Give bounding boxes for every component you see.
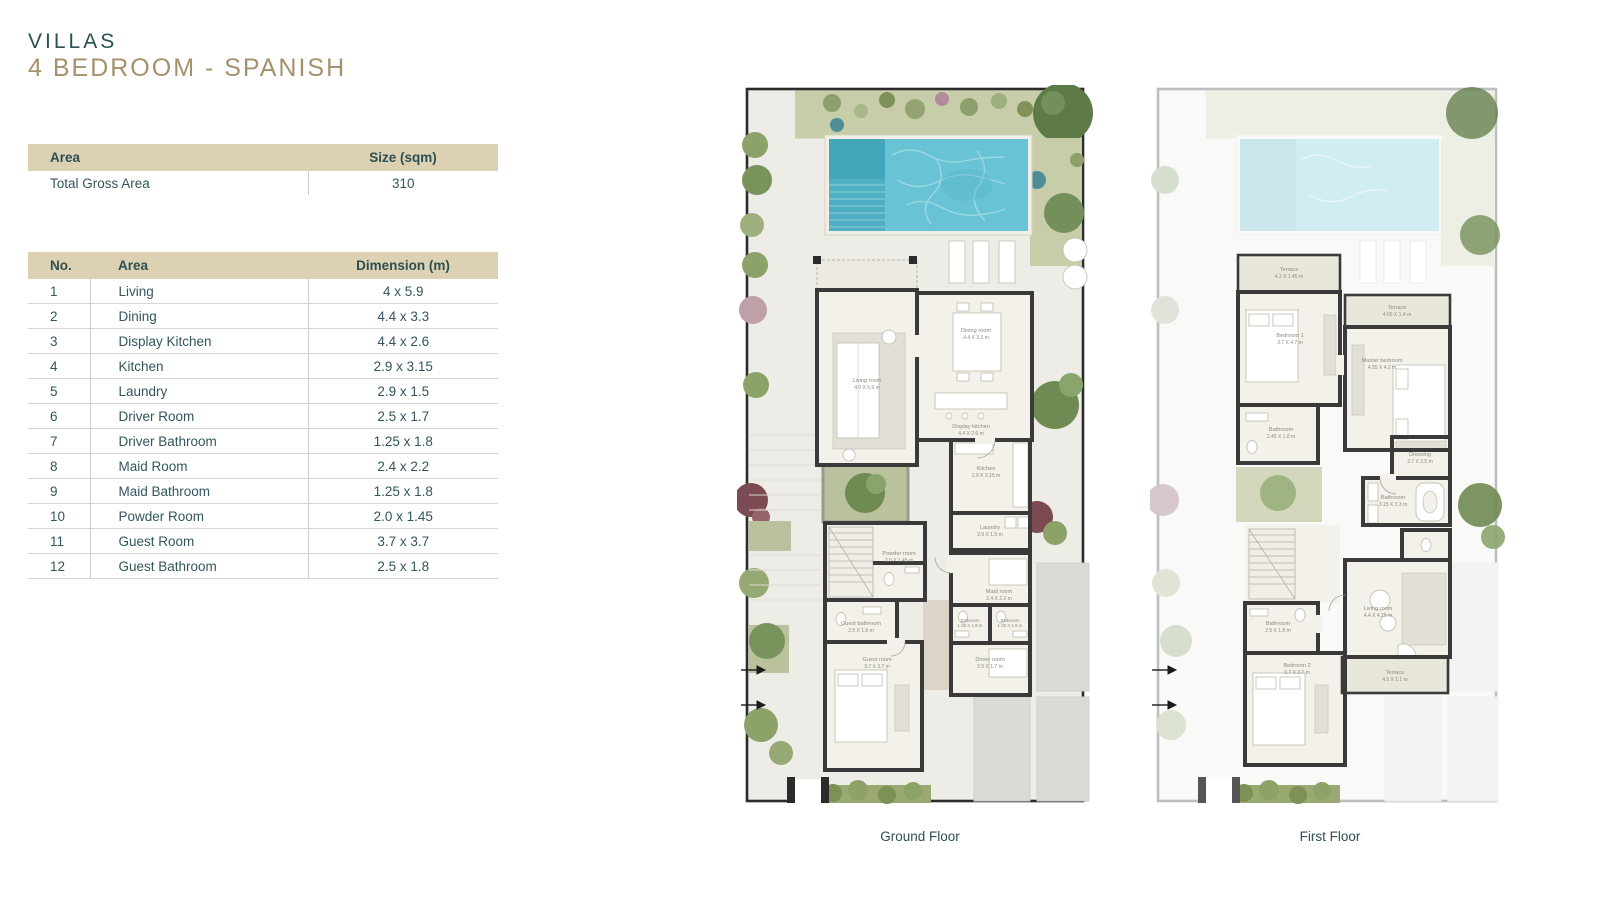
- label-driver-room: Driver room: [975, 657, 1005, 663]
- cell-area: Maid Room: [90, 454, 308, 479]
- label-display-kitchen: Display kitchen: [952, 424, 990, 430]
- table-row: 9Maid Bathroom1.25 x 1.8: [28, 479, 498, 504]
- total-area-table: Area Size (sqm) Total Gross Area 310: [28, 144, 498, 195]
- cell-dim: 2.5 x 1.7: [308, 404, 498, 429]
- svg-text:1.25 X 1.8 m: 1.25 X 1.8 m: [998, 623, 1023, 628]
- stairs: [1249, 529, 1295, 599]
- cell-dim: 2.9 x 1.5: [308, 379, 498, 404]
- table-row: 3Display Kitchen4.4 x 2.6: [28, 329, 498, 354]
- table-header-row: No. Area Dimension (m): [28, 252, 498, 279]
- label-living-room: Living room: [1364, 606, 1393, 612]
- label-kitchen: Kitchen: [977, 466, 996, 472]
- svg-text:4.65 X 1.4 m: 4.65 X 1.4 m: [1383, 312, 1411, 318]
- svg-text:3.7 X 4.7 m: 3.7 X 4.7 m: [1277, 340, 1303, 346]
- ground-floor-caption: Ground Floor: [737, 829, 1103, 844]
- page-title: VILLAS: [28, 30, 117, 54]
- cell-dim: 1.25 x 1.8: [308, 479, 498, 504]
- cell-no: 4: [28, 354, 90, 379]
- cell-area: Kitchen: [90, 354, 308, 379]
- cell-area-size: 310: [308, 171, 498, 195]
- svg-text:2.45 X 1.8 m: 2.45 X 1.8 m: [1267, 434, 1295, 440]
- svg-text:2.4 X 2.2 m: 2.4 X 2.2 m: [986, 596, 1012, 602]
- svg-text:3.7 X 3.7 m: 3.7 X 3.7 m: [864, 664, 890, 670]
- cell-area: Driver Bathroom: [90, 429, 308, 454]
- ground-floor-plan: Living room 4.0 X 5.9 m Dining room 4.4 …: [737, 85, 1103, 813]
- table-row: 4Kitchen2.9 x 3.15: [28, 354, 498, 379]
- svg-text:2.5 X 1.7 m: 2.5 X 1.7 m: [977, 664, 1003, 670]
- cell-no: 6: [28, 404, 90, 429]
- cell-no: 10: [28, 504, 90, 529]
- cell-no: 9: [28, 479, 90, 504]
- label-dressing: Dressing: [1409, 452, 1431, 458]
- label-bathroom-1: Bathroom: [1269, 427, 1294, 433]
- cell-dim: 1.25 x 1.8: [308, 429, 498, 454]
- cell-no: 7: [28, 429, 90, 454]
- table-row: 2Dining4.4 x 3.3: [28, 304, 498, 329]
- cell-dim: 2.5 x 1.8: [308, 554, 498, 579]
- svg-text:4.4 X 2.6 m: 4.4 X 2.6 m: [958, 431, 984, 437]
- cell-area: Powder Room: [90, 504, 308, 529]
- svg-text:2.5 X 1.8 m: 2.5 X 1.8 m: [848, 628, 874, 634]
- room-dimensions-table: No. Area Dimension (m) 1Living4 x 5.9 2D…: [28, 252, 498, 579]
- col-header-size: Size (sqm): [308, 144, 498, 171]
- garden-top: [795, 85, 1093, 143]
- page-subtitle: 4 BEDROOM - SPANISH: [28, 54, 346, 83]
- table-row: 1Living4 x 5.9: [28, 279, 498, 304]
- label-laundry: Laundry: [980, 525, 1000, 531]
- first-floor-caption: First Floor: [1150, 829, 1510, 844]
- svg-text:4.0 X 5.9 m: 4.0 X 5.9 m: [854, 385, 880, 391]
- cell-dim: 2.4 x 2.2: [308, 454, 498, 479]
- porch: [817, 260, 917, 290]
- cell-no: 2: [28, 304, 90, 329]
- cell-no: 3: [28, 329, 90, 354]
- svg-text:1.25 X 1.8 m: 1.25 X 1.8 m: [958, 623, 983, 628]
- cell-area: Laundry: [90, 379, 308, 404]
- entry-path: [923, 600, 953, 690]
- cell-no: 1: [28, 279, 90, 304]
- cell-area-name: Total Gross Area: [28, 171, 308, 195]
- table-row: 8Maid Room2.4 x 2.2: [28, 454, 498, 479]
- svg-text:4.4 X 4.25 m: 4.4 X 4.25 m: [1364, 613, 1392, 619]
- label-bathroom-3: Bathroom: [1266, 621, 1291, 627]
- swimming-pool: [825, 135, 1032, 235]
- label-master-bedroom: Master bedroom: [1362, 358, 1403, 364]
- cell-area: Driver Room: [90, 404, 308, 429]
- table-row: 5Laundry2.9 x 1.5: [28, 379, 498, 404]
- svg-text:2.9 X 1.5 m: 2.9 X 1.5 m: [977, 532, 1003, 538]
- table-row: 6Driver Room2.5 x 1.7: [28, 404, 498, 429]
- col-header-no: No.: [28, 252, 90, 279]
- stairs: [829, 527, 873, 597]
- cell-dim: 2.9 x 3.15: [308, 354, 498, 379]
- ground-floor-plan-drawing: Living room 4.0 X 5.9 m Dining room 4.4 …: [737, 85, 1103, 813]
- cell-dim: 2.0 x 1.45: [308, 504, 498, 529]
- cell-area: Guest Room: [90, 529, 308, 554]
- table-row: Total Gross Area 310: [28, 171, 498, 195]
- label-dining-room: Dining room: [961, 328, 991, 334]
- first-floor-plan-drawing: Terrace 4.2 X 1.45 m Bedroom 1 3.7 X 4.7…: [1150, 85, 1510, 813]
- cell-area: Display Kitchen: [90, 329, 308, 354]
- col-header-dimension: Dimension (m): [308, 252, 498, 279]
- cell-dim: 3.7 x 3.7: [308, 529, 498, 554]
- svg-text:2.0 X 1.45 m: 2.0 X 1.45 m: [885, 558, 913, 564]
- cell-no: 12: [28, 554, 90, 579]
- brochure-page: VILLAS 4 BEDROOM - SPANISH Area Size (sq…: [0, 0, 1600, 900]
- svg-text:4.4 X 3.3 m: 4.4 X 3.3 m: [963, 335, 989, 341]
- table-header-row: Area Size (sqm): [28, 144, 498, 171]
- label-terrace-2: Terrace: [1388, 305, 1407, 311]
- col-header-area: Area: [90, 252, 308, 279]
- cell-area: Living: [90, 279, 308, 304]
- label-powder-room: Powder room: [882, 551, 916, 557]
- table-row: 11Guest Room3.7 x 3.7: [28, 529, 498, 554]
- svg-text:3.15 X 3.3 m: 3.15 X 3.3 m: [1379, 502, 1407, 508]
- label-bedroom-1: Bedroom 1: [1276, 333, 1303, 339]
- table-row: 7Driver Bathroom1.25 x 1.8: [28, 429, 498, 454]
- svg-text:2.9 X 3.15 m: 2.9 X 3.15 m: [972, 473, 1000, 479]
- label-guest-room: Guest room: [862, 657, 892, 663]
- cell-no: 11: [28, 529, 90, 554]
- label-bathroom-2: Bathroom: [1381, 495, 1406, 501]
- cell-dim: 4.4 x 3.3: [308, 304, 498, 329]
- cell-area: Maid Bathroom: [90, 479, 308, 504]
- svg-text:3.7 X 3.7 m: 3.7 X 3.7 m: [1284, 670, 1310, 676]
- label-bedroom-2: Bedroom 2: [1283, 663, 1310, 669]
- entrance-gate: [787, 777, 829, 803]
- cell-dim: 4 x 5.9: [308, 279, 498, 304]
- entrance-gate: [1198, 777, 1240, 803]
- label-terrace-1: Terrace: [1280, 267, 1299, 273]
- label-maid-room: Maid room: [986, 589, 1013, 595]
- cell-no: 5: [28, 379, 90, 404]
- col-header-area: Area: [28, 144, 308, 171]
- cell-area: Guest Bathroom: [90, 554, 308, 579]
- svg-text:4.5 X 1.1 m: 4.5 X 1.1 m: [1382, 677, 1408, 683]
- svg-text:2.5 X 1.8 m: 2.5 X 1.8 m: [1265, 628, 1291, 634]
- cell-dim: 4.4 x 2.6: [308, 329, 498, 354]
- courtyard: [823, 465, 908, 522]
- label-guest-bathroom: Guest bathroom: [841, 621, 881, 627]
- cell-no: 8: [28, 454, 90, 479]
- svg-text:4.2 X 1.45 m: 4.2 X 1.45 m: [1275, 274, 1303, 280]
- svg-text:2.7 X 2.5 m: 2.7 X 2.5 m: [1407, 459, 1433, 465]
- table-row: 12Guest Bathroom2.5 x 1.8: [28, 554, 498, 579]
- label-terrace-3: Terrace: [1386, 670, 1405, 676]
- table-row: 10Powder Room2.0 x 1.45: [28, 504, 498, 529]
- svg-text:4.55 X 4.2 m: 4.55 X 4.2 m: [1368, 365, 1396, 371]
- label-living-room: Living room: [853, 378, 882, 384]
- first-floor-plan: Terrace 4.2 X 1.45 m Bedroom 1 3.7 X 4.7…: [1150, 85, 1510, 813]
- cell-area: Dining: [90, 304, 308, 329]
